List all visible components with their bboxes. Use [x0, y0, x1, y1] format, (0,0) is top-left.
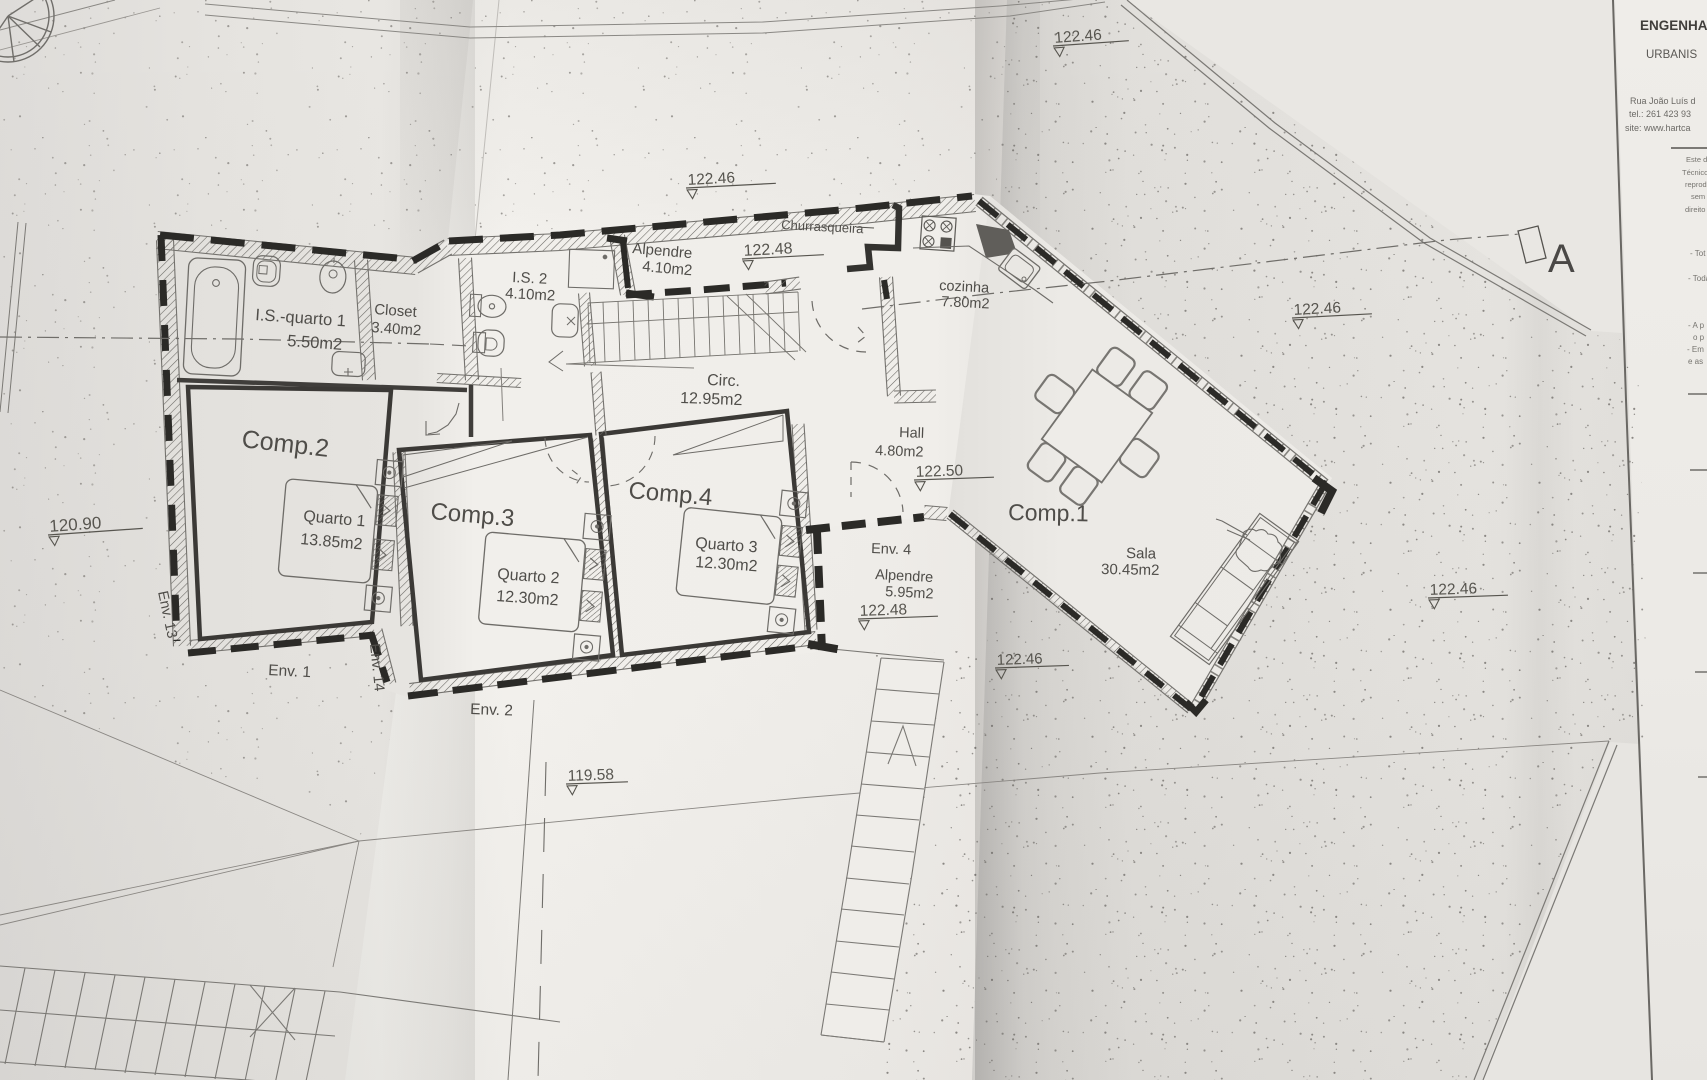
svg-text:reprod: reprod: [1685, 180, 1707, 189]
svg-text:- Toda: - Toda: [1688, 274, 1707, 283]
svg-text:Comp.1: Comp.1: [1008, 499, 1089, 526]
svg-text:sem: sem: [1691, 192, 1705, 201]
svg-text:5.50m2: 5.50m2: [287, 332, 343, 354]
svg-text:URBANIS: URBANIS: [1646, 49, 1697, 61]
svg-text:tel.: 261 423 93: tel.: 261 423 93: [1629, 109, 1691, 119]
svg-text:4.80m2: 4.80m2: [875, 443, 924, 461]
svg-text:Circ.: Circ.: [707, 372, 740, 390]
svg-text:Técnico: Técnico: [1682, 168, 1707, 177]
svg-text:e as: e as: [1688, 357, 1703, 366]
svg-text:site: www.hartca: site: www.hartca: [1625, 123, 1691, 133]
svg-text:- Em: - Em: [1687, 345, 1704, 354]
svg-text:7.80m2: 7.80m2: [941, 294, 990, 313]
svg-text:Env. 2: Env. 2: [470, 701, 513, 719]
svg-text:5.95m2: 5.95m2: [885, 584, 934, 603]
svg-text:4.10m2: 4.10m2: [505, 285, 556, 305]
svg-text:30.45m2: 30.45m2: [1101, 561, 1160, 579]
svg-text:Sala: Sala: [1126, 545, 1157, 563]
svg-text:o p: o p: [1693, 333, 1705, 342]
svg-text:Rua João Luís d: Rua João Luís d: [1630, 96, 1696, 106]
svg-text:Env. 1: Env. 1: [268, 662, 312, 681]
svg-text:Hall: Hall: [899, 425, 925, 442]
svg-text:12.95m2: 12.95m2: [680, 390, 743, 409]
svg-text:120.90: 120.90: [49, 513, 102, 536]
svg-text:Closet: Closet: [374, 301, 418, 321]
svg-text:Alpendre: Alpendre: [875, 567, 934, 586]
svg-text:Env. 4: Env. 4: [871, 541, 912, 558]
svg-text:- A p: - A p: [1688, 321, 1705, 330]
svg-text:3.40m2: 3.40m2: [371, 319, 422, 339]
svg-text:- Tot: - Tot: [1690, 249, 1706, 258]
svg-text:Este d: Este d: [1686, 155, 1707, 164]
svg-text:direito: direito: [1685, 205, 1705, 214]
svg-text:A: A: [1548, 237, 1575, 281]
svg-text:ENGENHAR: ENGENHAR: [1640, 18, 1707, 33]
